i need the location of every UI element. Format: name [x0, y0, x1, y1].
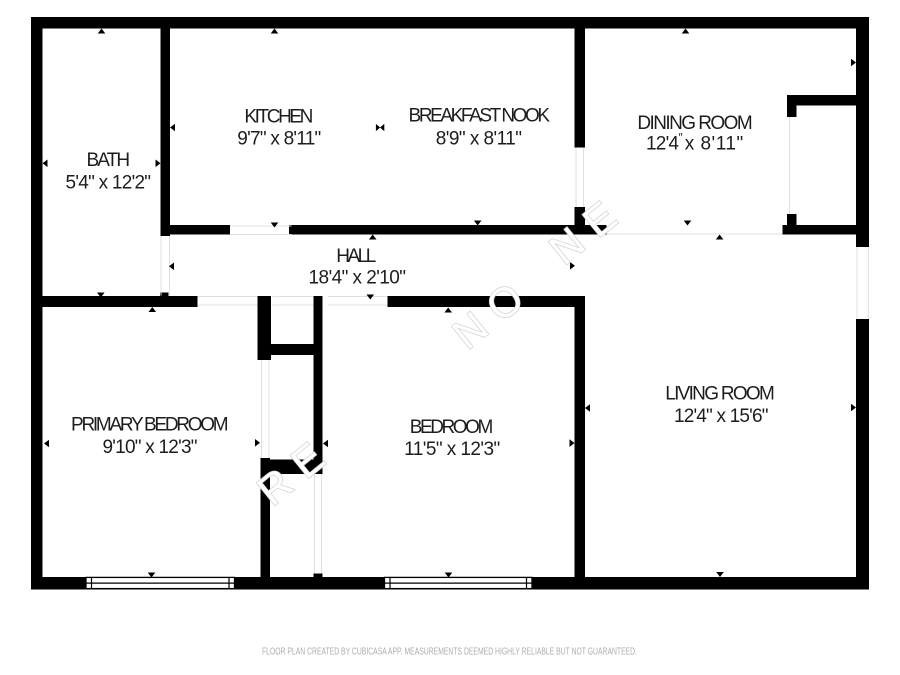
svg-text:12'4: 12'4: [646, 134, 679, 155]
svg-text:FLOOR PLAN CREATED BY CUBICASA: FLOOR PLAN CREATED BY CUBICASA APP. MEAS…: [262, 647, 637, 658]
svg-text:LIVING ROOM: LIVING ROOM: [665, 384, 775, 405]
svg-text:x 8'11": x 8'11": [685, 134, 744, 155]
svg-text:BEDROOM: BEDROOM: [410, 417, 494, 438]
svg-text:″: ″: [678, 133, 682, 145]
svg-text:11'5" x 12'3": 11'5" x 12'3": [404, 439, 500, 460]
svg-text:DINING ROOM: DINING ROOM: [637, 113, 752, 134]
svg-text:NE: NE: [540, 184, 635, 274]
svg-text:9'10" x 12'3": 9'10" x 12'3": [103, 437, 198, 458]
svg-text:KITCHEN: KITCHEN: [244, 107, 313, 128]
svg-text:18'4" x 2'10": 18'4" x 2'10": [309, 268, 407, 289]
svg-text:5'4" x 12'2": 5'4" x 12'2": [66, 173, 152, 194]
svg-text:NO: NO: [444, 265, 543, 358]
svg-text:8'9" x 8'11": 8'9" x 8'11": [436, 129, 522, 150]
svg-text:12'4" x 15'6": 12'4" x 15'6": [674, 406, 769, 427]
svg-text:HALL: HALL: [336, 246, 376, 267]
svg-text:BREAKFAST NOOK: BREAKFAST NOOK: [409, 106, 551, 127]
svg-text:9'7" x 8'11": 9'7" x 8'11": [237, 129, 321, 150]
svg-text:BATH: BATH: [87, 150, 131, 171]
svg-text:PRIMARY BEDROOM: PRIMARY BEDROOM: [71, 415, 228, 436]
